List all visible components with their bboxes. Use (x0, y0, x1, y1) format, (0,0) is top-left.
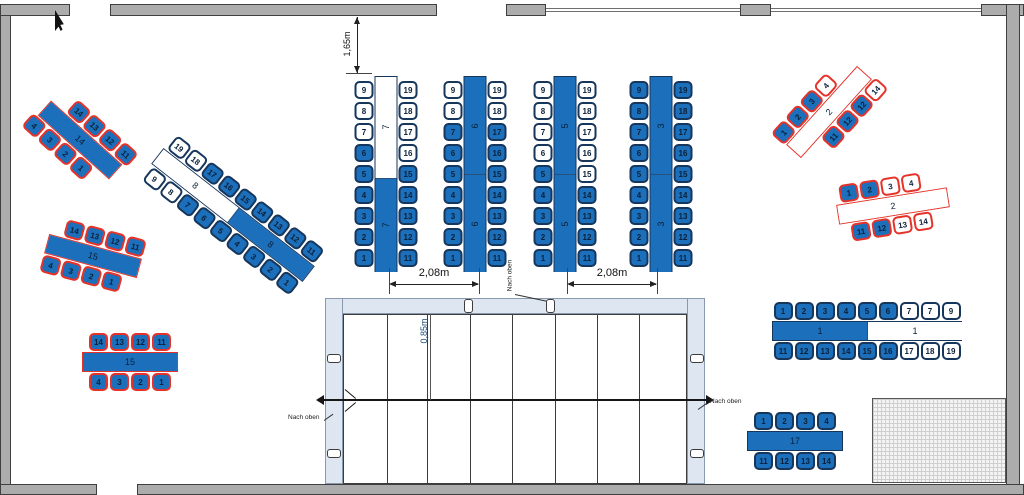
table-label: 15 (125, 357, 135, 367)
table-5-top[interactable]: 55 (554, 76, 577, 272)
stair-door-right-upper (690, 354, 704, 363)
hatched-area (872, 398, 1006, 483)
chair-1[interactable]: 1 (534, 249, 553, 267)
wall-top-3 (506, 4, 546, 16)
chair-18[interactable]: 18 (674, 102, 693, 120)
wall-left (0, 4, 11, 495)
chair-column-left: 987654321 (533, 80, 554, 269)
table-label: 5 (560, 221, 570, 226)
chair-12[interactable]: 12 (578, 228, 597, 246)
chair-11[interactable]: 11 (674, 249, 693, 267)
chair-17[interactable]: 17 (488, 123, 507, 141)
chair-3[interactable]: 3 (880, 176, 902, 197)
chair-9[interactable]: 9 (534, 81, 553, 99)
chair-16[interactable]: 16 (399, 144, 418, 162)
dim-085-label: 0,85m (419, 309, 429, 353)
wall-bottom-1 (0, 484, 97, 495)
chair-2[interactable]: 2 (630, 228, 649, 246)
table-7[interactable]: 98765432177191817161514131211 (354, 76, 419, 272)
chair-11[interactable]: 11 (774, 342, 793, 360)
chair-9[interactable]: 9 (355, 81, 374, 99)
dim-208R-arrow-left (567, 281, 574, 287)
chair-11[interactable]: 11 (850, 221, 872, 242)
table-label: 1 (817, 326, 822, 336)
chair-4[interactable]: 4 (534, 186, 553, 204)
chair-12[interactable]: 12 (775, 452, 794, 470)
chair-13[interactable]: 13 (488, 207, 507, 225)
chair-16[interactable]: 16 (674, 144, 693, 162)
chair-1[interactable]: 1 (754, 412, 773, 430)
chair-12[interactable]: 12 (795, 342, 814, 360)
dim-208R-label: 2,08m (588, 267, 636, 279)
wall-top-2 (110, 4, 437, 16)
table-14[interactable]: 14131211144321 (24, 86, 135, 195)
table-segment[interactable]: 3 (651, 174, 672, 272)
dim-208L-label: 2,08m (410, 267, 458, 279)
chair-2[interactable]: 2 (355, 228, 374, 246)
chair-3[interactable]: 3 (630, 207, 649, 225)
chair-15[interactable]: 15 (858, 342, 877, 360)
chair-11[interactable]: 11 (124, 235, 147, 257)
chair-12[interactable]: 12 (674, 228, 693, 246)
chair-19[interactable]: 19 (942, 342, 961, 360)
table-15-upper[interactable]: 14131211154321 (39, 215, 147, 298)
chair-1[interactable]: 1 (100, 271, 123, 293)
wall-right (1006, 4, 1020, 495)
table-17-top[interactable]: 17 (747, 431, 843, 451)
table-label: 15 (87, 250, 99, 262)
stair-door-left-upper (327, 354, 341, 363)
chair-14[interactable]: 14 (488, 186, 507, 204)
chair-13[interactable]: 13 (816, 342, 835, 360)
chair-15[interactable]: 15 (578, 165, 597, 183)
chair-6[interactable]: 6 (355, 144, 374, 162)
table-2-upper[interactable]: 1234211121214 (771, 53, 887, 172)
floorplan-canvas: 1,65m 2,08m 2,08m 0,85m Nach oben Nach o… (0, 0, 1024, 495)
wall-bottom-2 (137, 484, 1024, 495)
chair-5[interactable]: 5 (858, 302, 877, 320)
table-8-top[interactable]: 88 (151, 148, 315, 282)
chair-8[interactable]: 8 (534, 102, 553, 120)
chair-14[interactable]: 14 (674, 186, 693, 204)
chair-19[interactable]: 19 (399, 81, 418, 99)
table-segment[interactable]: 1 (773, 322, 867, 340)
chair-13[interactable]: 13 (578, 207, 597, 225)
chair-row-bottom: 111213141516171819 (773, 341, 962, 361)
table-label: 5 (560, 123, 570, 128)
table-5[interactable]: 98765432155191817161514131211 (533, 76, 598, 272)
chair-column-left: 987654321 (629, 80, 650, 269)
chair-1[interactable]: 1 (774, 302, 793, 320)
table-label: 17 (790, 436, 800, 446)
chair-14[interactable]: 14 (578, 186, 597, 204)
nach-oben-left: Nach oben (288, 414, 319, 421)
nach-oben-center: Nach oben (507, 255, 514, 297)
stair-door-top-1 (464, 299, 473, 313)
dim-165-arrow-up (354, 17, 360, 24)
chair-1[interactable]: 1 (444, 249, 463, 267)
dim-085-line (430, 314, 431, 400)
chair-4[interactable]: 4 (444, 186, 463, 204)
table-3-top[interactable]: 33 (650, 76, 673, 272)
table-label: 1 (912, 326, 917, 336)
chair-13[interactable]: 13 (674, 207, 693, 225)
table-label: 2 (890, 201, 897, 212)
table-1-top[interactable]: 11 (772, 321, 962, 341)
chair-14[interactable]: 14 (817, 452, 836, 470)
chair-2[interactable]: 2 (534, 228, 553, 246)
chair-3[interactable]: 3 (534, 207, 553, 225)
chair-13[interactable]: 13 (83, 225, 106, 247)
table-label: 3 (656, 123, 666, 128)
table-label: 3 (656, 221, 666, 226)
chair-7[interactable]: 7 (900, 302, 919, 320)
chair-2[interactable]: 2 (131, 373, 150, 391)
dim-208L-arrow-left (389, 281, 396, 287)
chair-18[interactable]: 18 (921, 342, 940, 360)
table-3[interactable]: 98765432133191817161514131211 (629, 76, 694, 272)
chair-row-top: 14131211 (88, 332, 172, 352)
chair-14[interactable]: 14 (63, 219, 86, 241)
chair-18[interactable]: 18 (399, 102, 418, 120)
chair-15[interactable]: 15 (399, 165, 418, 183)
chair-4[interactable]: 4 (817, 412, 836, 430)
table-segment[interactable]: 3 (651, 77, 672, 174)
table-15-lower[interactable]: 14131211154321 (82, 332, 178, 392)
chair-14[interactable]: 14 (837, 342, 856, 360)
chair-8[interactable]: 8 (355, 102, 374, 120)
table-segment[interactable]: 1 (867, 322, 962, 340)
chair-18[interactable]: 18 (488, 102, 507, 120)
chair-4[interactable]: 4 (630, 186, 649, 204)
chair-2[interactable]: 2 (444, 228, 463, 246)
chair-7[interactable]: 7 (355, 123, 374, 141)
chair-5[interactable]: 5 (630, 165, 649, 183)
chair-7[interactable]: 7 (534, 123, 553, 141)
table-6-top[interactable]: 66 (464, 76, 487, 272)
window-top-1 (546, 8, 740, 12)
window-top-2 (771, 8, 981, 12)
chair-16[interactable]: 16 (488, 144, 507, 162)
chair-2[interactable]: 2 (80, 265, 103, 287)
chair-19[interactable]: 19 (578, 81, 597, 99)
chair-12[interactable]: 12 (399, 228, 418, 246)
dim-208L-arrow-right (472, 281, 479, 287)
table-label: 7 (381, 125, 391, 130)
chair-12[interactable]: 12 (131, 333, 150, 351)
chair-9[interactable]: 9 (630, 81, 649, 99)
stair-wall-top (325, 298, 705, 314)
chair-7[interactable]: 7 (921, 302, 940, 320)
chair-19[interactable]: 19 (488, 81, 507, 99)
dim-165-tick (346, 73, 372, 74)
chair-5[interactable]: 5 (355, 165, 374, 183)
chair-3[interactable]: 3 (816, 302, 835, 320)
chair-1[interactable]: 1 (630, 249, 649, 267)
chair-9[interactable]: 9 (942, 302, 961, 320)
dim-208L-line (391, 284, 478, 285)
dim-165-label: 1,65m (342, 19, 352, 69)
chair-17[interactable]: 17 (399, 123, 418, 141)
chair-18[interactable]: 18 (578, 102, 597, 120)
chair-3[interactable]: 3 (355, 207, 374, 225)
chair-5[interactable]: 5 (444, 165, 463, 183)
chair-13[interactable]: 13 (796, 452, 815, 470)
chair-14[interactable]: 14 (89, 333, 108, 351)
chair-row-top: 1234 (753, 411, 837, 431)
table-2-lower[interactable]: 1234211121314 (833, 168, 953, 245)
chair-16[interactable]: 16 (578, 144, 597, 162)
chair-column-right: 191817161514131211 (487, 80, 508, 269)
table-label: 14 (73, 133, 87, 147)
chair-17[interactable]: 17 (578, 123, 597, 141)
table-segment[interactable]: 7 (376, 178, 397, 272)
chair-1[interactable]: 1 (838, 182, 860, 203)
chair-15[interactable]: 15 (488, 165, 507, 183)
chair-2[interactable]: 2 (859, 179, 881, 200)
chair-12[interactable]: 12 (488, 228, 507, 246)
chair-7[interactable]: 7 (444, 123, 463, 141)
nach-oben-right: Nach oben (710, 398, 741, 405)
chair-11[interactable]: 11 (399, 249, 418, 267)
stair-arrow-left (316, 395, 324, 405)
chair-column-left: 987654321 (443, 80, 464, 269)
chair-3[interactable]: 3 (110, 373, 129, 391)
chair-16[interactable]: 16 (879, 342, 898, 360)
dim-208R-line (569, 284, 656, 285)
chair-2[interactable]: 2 (775, 412, 794, 430)
chair-column-right: 191817161514131211 (577, 80, 598, 269)
chair-17[interactable]: 17 (674, 123, 693, 141)
chair-17[interactable]: 17 (900, 342, 919, 360)
table-segment[interactable]: 6 (465, 174, 486, 272)
chair-1[interactable]: 1 (152, 373, 171, 391)
chair-4[interactable]: 4 (355, 186, 374, 204)
chair-3[interactable]: 3 (59, 260, 82, 282)
chair-6[interactable]: 6 (879, 302, 898, 320)
dim-208R-arrow-right (650, 281, 657, 287)
stair-door-top-2 (546, 299, 555, 313)
dim-165-line (357, 17, 358, 73)
table-8[interactable]: 19181716151413121188987654321 (139, 132, 327, 297)
dim-208R-tick-right (657, 268, 658, 294)
dim-165-arrow-down (354, 66, 360, 73)
wall-top-1 (0, 4, 70, 16)
stair-direction-line (322, 399, 708, 401)
chair-row-bottom: 4321 (88, 372, 172, 392)
table-label: 6 (470, 123, 480, 128)
chair-13[interactable]: 13 (110, 333, 129, 351)
chair-4[interactable]: 4 (89, 373, 108, 391)
chair-13[interactable]: 13 (399, 207, 418, 225)
table-15-lower-top[interactable]: 15 (82, 352, 178, 372)
chair-4[interactable]: 4 (837, 302, 856, 320)
chair-11[interactable]: 11 (578, 249, 597, 267)
table-label: 8 (190, 180, 200, 191)
chair-4[interactable]: 4 (39, 254, 62, 276)
chair-column-left: 987654321 (354, 80, 375, 269)
table-label: 2 (824, 107, 835, 117)
chair-column-right: 191817161514131211 (673, 80, 694, 269)
table-label: 7 (381, 223, 391, 228)
table-6[interactable]: 98765432166191817161514131211 (443, 76, 508, 272)
chair-8[interactable]: 8 (444, 102, 463, 120)
table-segment[interactable]: 17 (748, 432, 842, 450)
chair-13[interactable]: 13 (892, 214, 914, 235)
chair-15[interactable]: 15 (674, 165, 693, 183)
table-segment[interactable]: 5 (555, 174, 576, 272)
table-label: 6 (470, 221, 480, 226)
chair-11[interactable]: 11 (152, 333, 171, 351)
chair-9[interactable]: 9 (444, 81, 463, 99)
chair-14[interactable]: 14 (912, 211, 934, 232)
table-segment[interactable]: 5 (555, 77, 576, 174)
chair-12[interactable]: 12 (871, 218, 893, 239)
table-7-top[interactable]: 77 (375, 76, 398, 272)
chair-11[interactable]: 11 (754, 452, 773, 470)
chair-14[interactable]: 14 (399, 186, 418, 204)
table-1[interactable]: 12345677911111213141516171819 (772, 301, 962, 361)
chair-12[interactable]: 12 (104, 230, 127, 252)
chair-11[interactable]: 11 (488, 249, 507, 267)
chair-7[interactable]: 7 (630, 123, 649, 141)
table-segment[interactable]: 7 (376, 77, 397, 178)
stair-door-right-lower (690, 449, 704, 458)
chair-3[interactable]: 3 (796, 412, 815, 430)
chair-6[interactable]: 6 (630, 144, 649, 162)
dim-208L-tick-right (479, 268, 480, 294)
chair-5[interactable]: 5 (534, 165, 553, 183)
chair-19[interactable]: 19 (674, 81, 693, 99)
chair-6[interactable]: 6 (534, 144, 553, 162)
chair-row-top: 123456779 (773, 301, 962, 321)
chair-3[interactable]: 3 (444, 207, 463, 225)
chair-8[interactable]: 8 (630, 102, 649, 120)
table-17[interactable]: 12341711121314 (747, 411, 843, 471)
table-segment[interactable]: 15 (83, 353, 177, 371)
chair-4[interactable]: 4 (900, 173, 922, 194)
stair-door-left-lower (327, 449, 341, 458)
chair-column-right: 191817161514131211 (398, 80, 419, 269)
wall-top-4 (740, 4, 771, 16)
chair-1[interactable]: 1 (355, 249, 374, 267)
table-segment[interactable]: 6 (465, 77, 486, 174)
table-label: 8 (266, 239, 276, 250)
chair-2[interactable]: 2 (795, 302, 814, 320)
chair-6[interactable]: 6 (444, 144, 463, 162)
chair-row-bottom: 11121314 (753, 451, 837, 471)
